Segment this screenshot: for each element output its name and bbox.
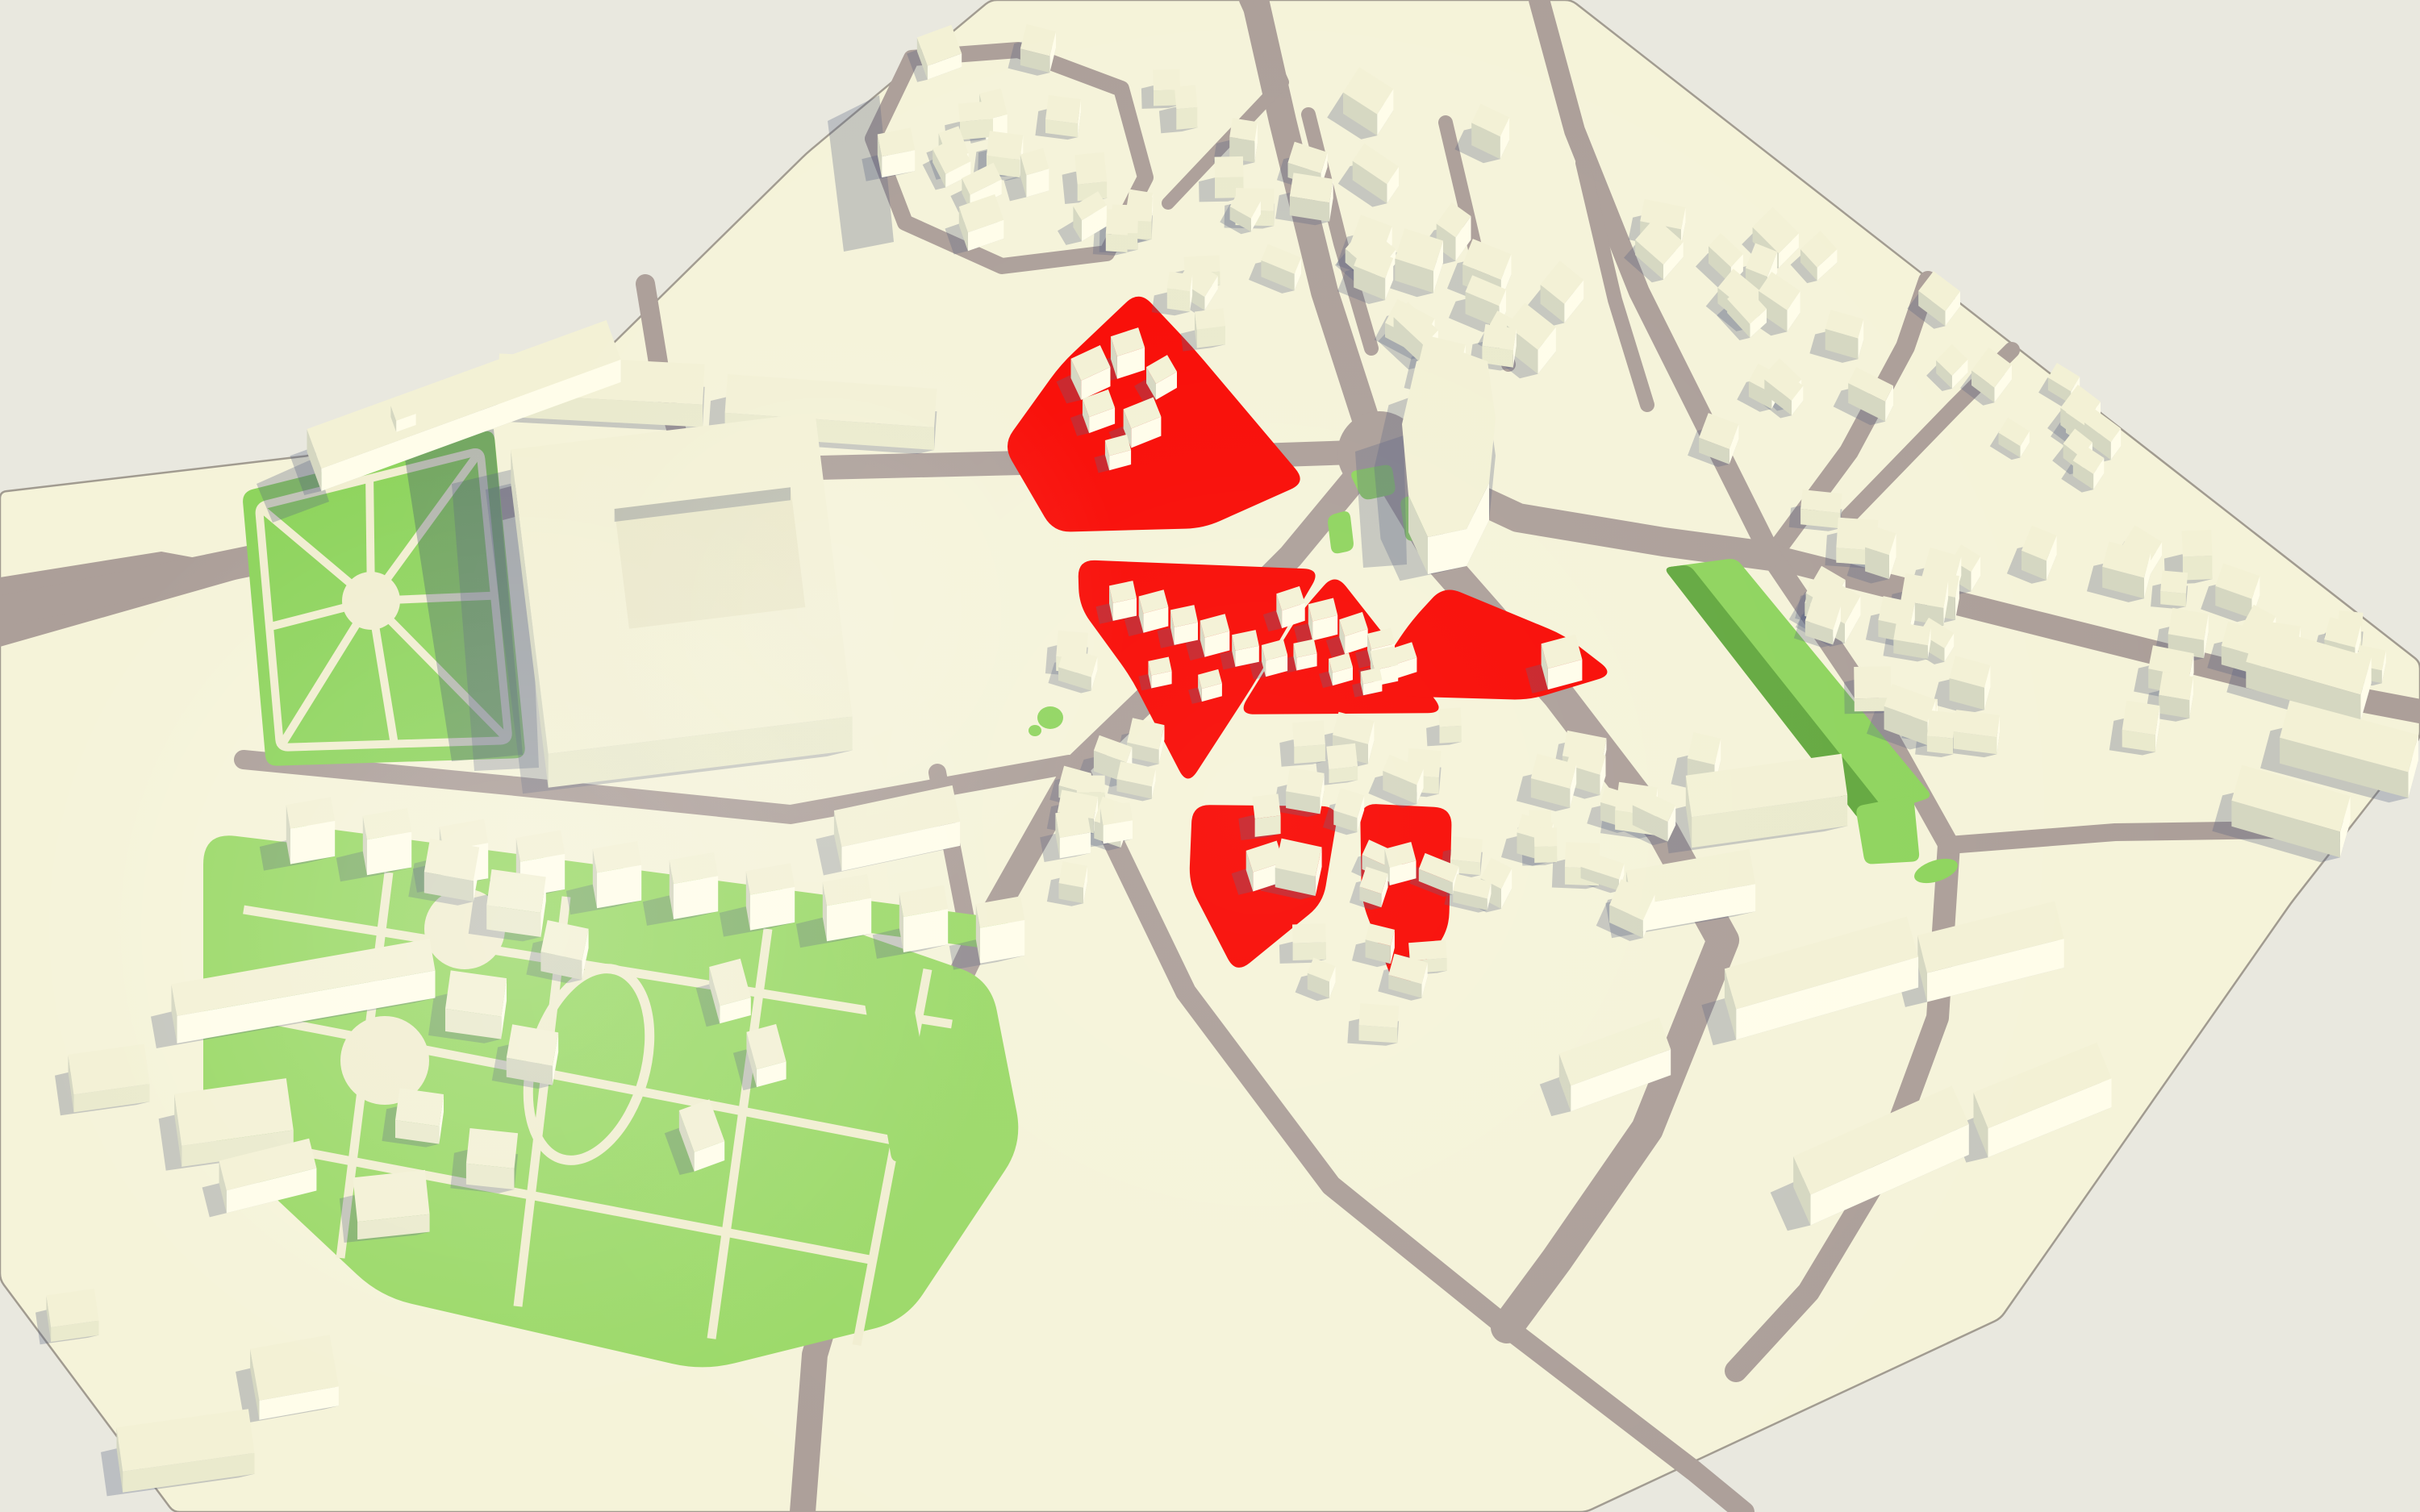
urban-model-viewport [0, 0, 2420, 1512]
city-massing-model-render [0, 0, 2420, 1512]
building-roof [47, 1289, 99, 1327]
sun-bloom [290, 0, 2226, 1512]
